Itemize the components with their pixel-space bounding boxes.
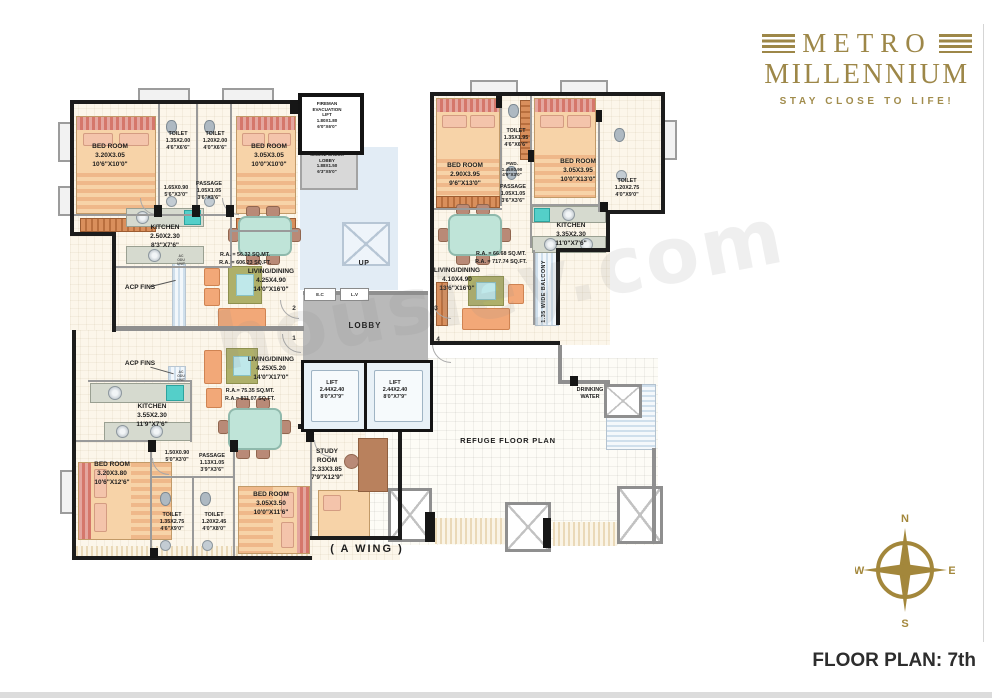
wall (556, 248, 610, 252)
wing-label: ( A WING ) (330, 542, 404, 557)
room-label-passage: PASSAGE 1.13X1.05 3'9"X3'6" (199, 453, 225, 474)
room-label-living: LIVING/DINING 4.25X4.90 14'0"X16'0" (248, 268, 294, 294)
wall-stub (600, 202, 608, 212)
partition (533, 250, 535, 325)
wall (112, 326, 304, 331)
lv-box: L.V (340, 288, 369, 301)
room-label-bedroom: BED ROOM 3.05X3.95 10'0"X13'0" (560, 158, 596, 184)
partition (72, 214, 230, 216)
room-label-toilet: TOILET 1.35X2.00 4'6"X6'6" (166, 131, 191, 152)
partition (76, 440, 152, 442)
rera-area-label: R.A. = 66.68 SQ.MT. R.A. = 717.74 SQ.FT. (475, 251, 527, 266)
stove (534, 208, 550, 222)
wall (398, 430, 402, 540)
sofa (462, 308, 510, 330)
wash-basin (202, 540, 213, 551)
headboard (535, 99, 595, 112)
partition (192, 476, 194, 556)
flat-number: 1 (292, 335, 296, 344)
stairs-up-label: UP (359, 259, 370, 268)
ec-label: E.C (316, 292, 324, 297)
wash-basin (160, 540, 171, 551)
wall-stub (570, 376, 578, 386)
wall (72, 556, 312, 560)
dim-label: 1.65X0.90 5'6"X3'0" (164, 185, 189, 199)
kitchen-sink (108, 386, 122, 400)
page-bottom-bar (0, 692, 992, 698)
wall (72, 330, 76, 560)
pillow (540, 115, 564, 128)
compass-south: S (901, 618, 908, 630)
partition (150, 446, 152, 556)
partition (158, 104, 160, 216)
wall (661, 92, 665, 214)
room-label-toilet: TOILET 1.20X2.45 4'0"X8'0" (202, 512, 227, 533)
room-label-bedroom: BED ROOM 3.05X3.50 10'0"X11'6" (253, 491, 289, 517)
pillow (94, 503, 107, 532)
kitchen-sink (136, 211, 149, 224)
wall-stub (290, 100, 298, 114)
floor-plan-page: METRO MILLENNIUM STAY CLOSE TO LIFE! (0, 0, 992, 698)
room-label-study: STUDY ROOM 2.33X3.85 7'9"X12'9" (311, 448, 343, 483)
brand-name-line2: MILLENNIUM (762, 59, 972, 91)
armchair (204, 268, 220, 286)
wall (608, 210, 665, 214)
stove (166, 385, 184, 401)
room-label-passage: PASSAGE 1.05X1.05 3'6"X3'6" (196, 181, 222, 202)
partition (530, 96, 532, 248)
acp-fins-label: ACP FINS (125, 360, 155, 369)
rera-area-label: R.A. = 56.32 SQ.MT. R.A. = 606.23 SQ.FT. (219, 252, 271, 267)
balcony-label: 1.35 WIDE BALCONY (541, 260, 547, 323)
compass-west: W (855, 565, 865, 577)
partition (230, 230, 298, 232)
room-label-pwd: PWD. 1.45X0.90 4'9"X3'0" (502, 161, 523, 178)
pillow (323, 495, 341, 511)
wall-stub (543, 518, 551, 548)
partition (598, 110, 600, 212)
room-label-kitchen: KITCHEN 2.50X2.30 8'3"X7'6" (150, 224, 180, 250)
headboard (297, 487, 309, 553)
wall (70, 100, 74, 236)
lobby-label: LOBBY (349, 321, 382, 332)
room-label-bedroom: BED ROOM 2.90X3.95 9'6"X13'0" (447, 162, 483, 188)
room-label-passage: PASSAGE 1.05X1.05 3'6"X3'6" (500, 184, 526, 205)
room-label-toilet: TOILET 1.35X1.95 4'6"X6'6" (504, 128, 529, 149)
ledge-strip (553, 522, 617, 546)
flat-number: 4 (436, 336, 440, 345)
room-label-bedroom: BED ROOM 3.20X3.05 10'6"X10'0" (92, 143, 128, 169)
wall (70, 100, 300, 104)
compass-east: E (948, 565, 955, 577)
compass-north: N (901, 513, 909, 525)
ledge-strip (435, 518, 505, 544)
wall (652, 448, 656, 543)
dim-label: 1.50X0.90 5'0"X3'0" (165, 450, 190, 464)
ac-odu-label: AC ODU UNIT (177, 254, 185, 266)
wall (310, 536, 402, 540)
room-label-toilet: TOILET 1.20X2.00 4'0"X6'6" (203, 131, 228, 152)
wall (112, 232, 116, 332)
flat-number: 3 (434, 305, 438, 314)
lift-label: LIFT 2.44X2.40 8'0"X7'9" (320, 380, 345, 401)
room-label-living: LIVING/DINING 4.25X5.20 14'0"X17'0" (248, 356, 294, 382)
study-desk (358, 438, 388, 492)
lift-label: LIFT 2.44X2.40 8'0"X7'9" (383, 380, 408, 401)
headboard (237, 117, 295, 130)
partition (190, 380, 192, 442)
partition (530, 204, 608, 206)
dining-table (448, 214, 502, 256)
headboard (437, 99, 499, 112)
floor-plan-title: FLOOR PLAN: 7th (812, 650, 976, 672)
partition (432, 208, 502, 210)
wall-stub (596, 110, 602, 122)
wall-stub (154, 205, 162, 217)
headboard (77, 117, 155, 130)
wall (556, 248, 560, 325)
wall-stub (425, 512, 435, 542)
ec-box: E.C (304, 288, 336, 301)
ac-odu-label: AC ODU UNIT (177, 370, 185, 382)
wall (430, 92, 665, 96)
column (617, 486, 663, 544)
pillow (567, 115, 591, 128)
room-label-bedroom: BED ROOM 3.20X3.80 10'6"X12'6" (94, 461, 130, 487)
fireman-lift-label: FIREMAN EVACUATION LIFT 1.80X1.80 6'0"X6… (312, 101, 341, 129)
brand-tagline: STAY CLOSE TO LIFE! (762, 96, 972, 107)
wall-stub (528, 150, 534, 162)
room-label-living: LIVING/DINING 4.10X4.90 13'6"X16'0" (434, 267, 480, 293)
acp-fins-label: ACP FINS (125, 284, 155, 293)
partition (116, 266, 232, 268)
partition (230, 104, 232, 216)
brand-name-line1: METRO (802, 28, 932, 59)
room-label-toilet: TOILET 1.20X2.75 4'0"X9'0" (615, 178, 640, 199)
kitchen-sink (562, 208, 575, 221)
kitchen-sink (116, 425, 129, 438)
column (604, 384, 642, 418)
room-label-bedroom: BED ROOM 3.05X3.05 10'0"X10'0" (251, 143, 287, 169)
headboard (79, 463, 91, 539)
wall (70, 232, 116, 236)
room-label-kitchen: KITCHEN 3.55X2.30 11'9"X7'6" (136, 403, 167, 429)
wall (558, 345, 562, 383)
partition (233, 440, 235, 556)
page-edge-line (983, 24, 984, 642)
kitchen-sink (148, 249, 161, 262)
room-label-toilet: TOILET 1.35X2.75 4'6"X9'0" (160, 512, 185, 533)
flat-number: 2 (292, 305, 296, 314)
rera-area-label: R.A.= 75.35 SQ.MT. R.A.= 811.07 SQ.FT. (225, 388, 275, 403)
pillow (442, 115, 467, 128)
smoke-lobby-label: SMOKE CHECK LOBBY 1.88X1.50 6'3"X5'0" (310, 152, 344, 175)
sofa (204, 350, 222, 384)
toilet-wc (160, 492, 171, 506)
drinking-water-label: DRINKING WATER (577, 387, 604, 401)
armchair (206, 388, 222, 408)
toilet-wc (508, 104, 519, 118)
logo-bars-left-icon (762, 34, 795, 53)
wall-stub (192, 205, 200, 217)
window-niche (663, 120, 677, 160)
acp-fin-strip (172, 263, 186, 331)
wall (430, 341, 560, 345)
pillow (281, 522, 294, 548)
room-label-kitchen: KITCHEN 3.35X2.30 11'0"X7'6" (555, 222, 586, 248)
dining-table (238, 216, 292, 256)
wall-stub (226, 205, 234, 217)
wall-stub (230, 440, 238, 452)
toilet-wc (200, 492, 211, 506)
refuge-floor-plan-label: REFUGE FLOOR PLAN (460, 436, 556, 446)
wall-stub (496, 96, 502, 108)
armchair (508, 284, 524, 304)
toilet-wc (614, 128, 625, 142)
wall (558, 380, 610, 384)
wall-stub (150, 548, 158, 558)
armchair (204, 288, 220, 306)
lv-label: L.V (351, 292, 358, 297)
desk-chair (344, 454, 359, 469)
logo-bars-right-icon (939, 34, 972, 53)
study-daybed (318, 490, 370, 538)
compass-rose-icon: N S W E (855, 510, 955, 630)
wall-stub (148, 440, 156, 452)
pillow (470, 115, 495, 128)
wall (606, 210, 610, 252)
brand-logo: METRO MILLENNIUM STAY CLOSE TO LIFE! (762, 28, 972, 107)
